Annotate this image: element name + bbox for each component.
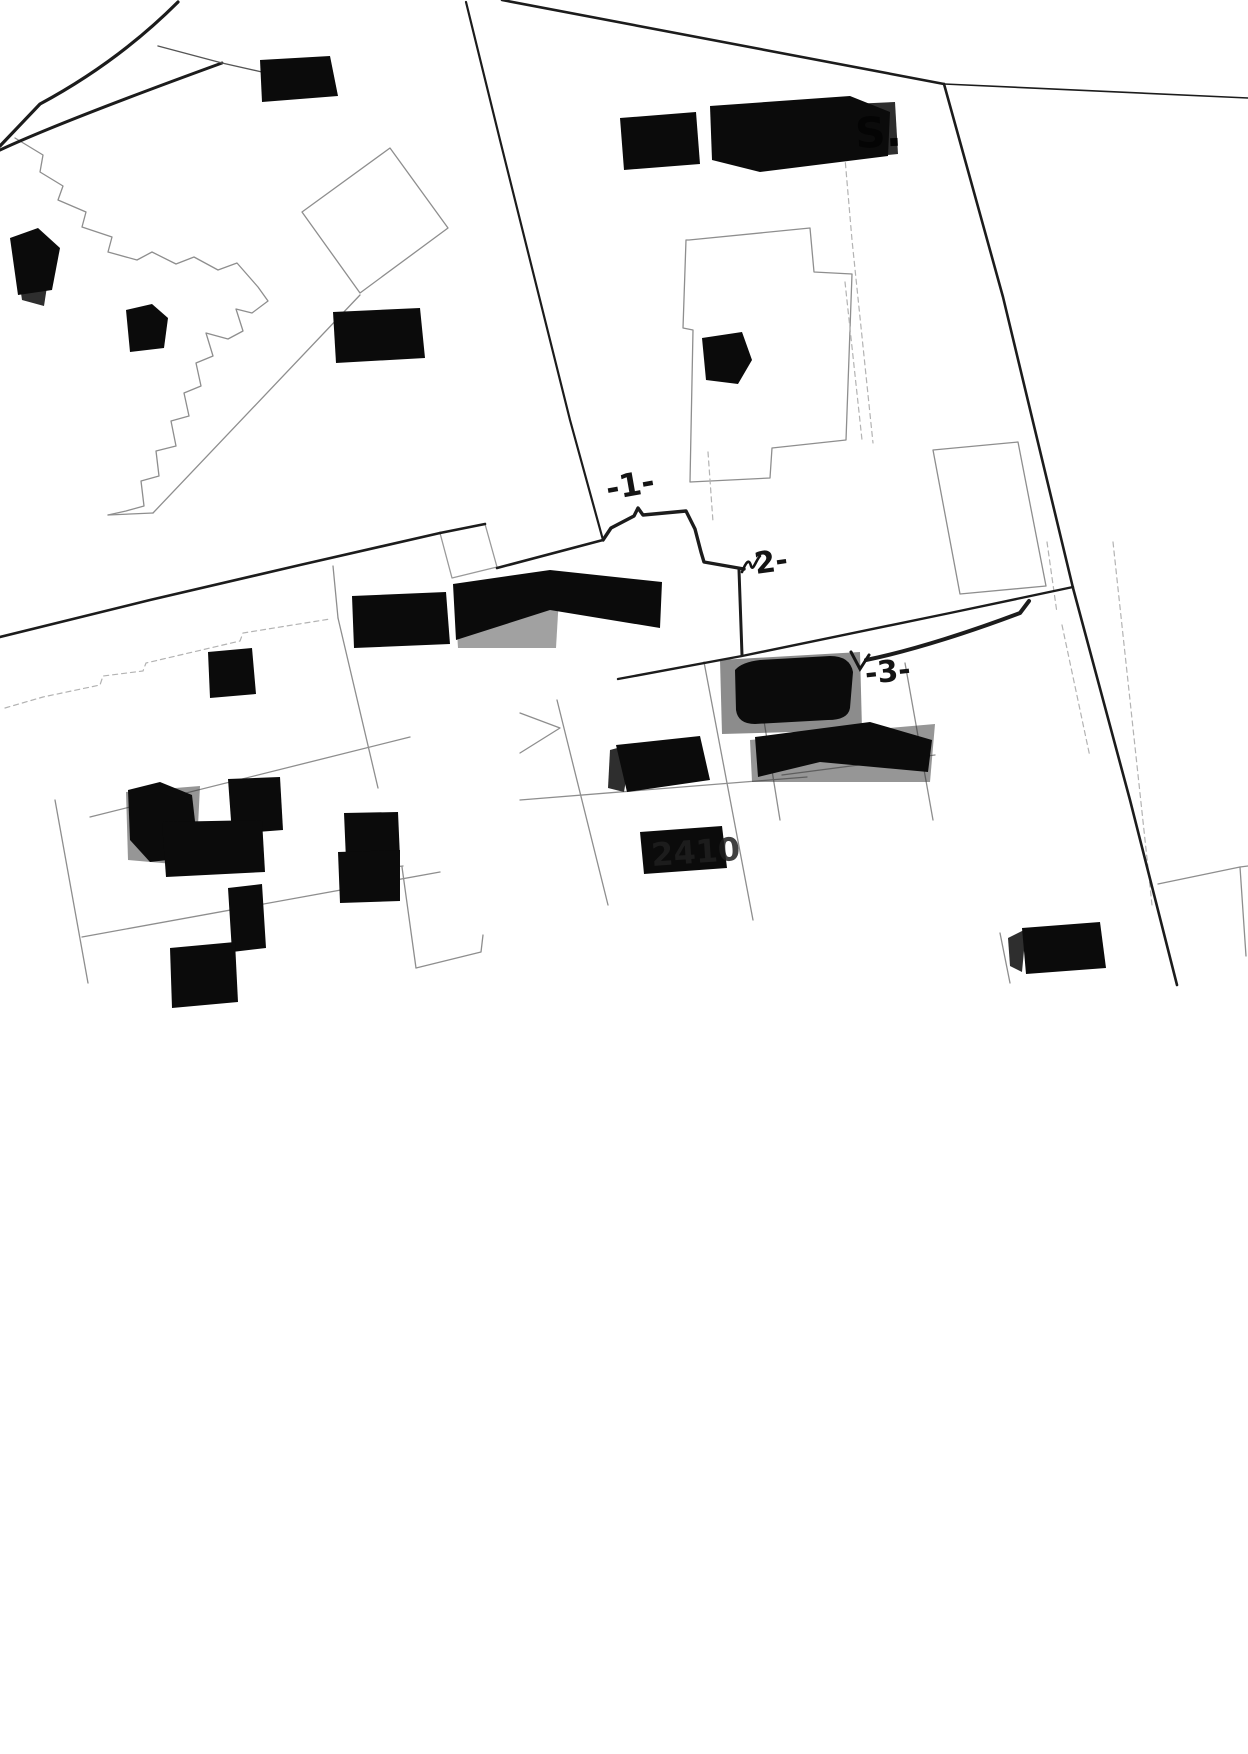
lot-line — [1240, 866, 1248, 867]
building-footprint — [228, 884, 266, 952]
boundary-steep-right — [944, 84, 1177, 985]
dashed-boundary — [1062, 625, 1090, 757]
parcel-rectangle — [302, 148, 448, 293]
boundary-steep-left — [466, 2, 603, 540]
annotation-3-label: -3- — [863, 652, 912, 692]
road-curve-top-left — [0, 2, 178, 146]
dashed-boundary — [1047, 542, 1057, 613]
lot-line — [402, 867, 416, 968]
building-footprint — [735, 656, 853, 724]
building-footprint — [10, 228, 60, 295]
parcel-quad — [933, 442, 1046, 594]
spur-line — [158, 46, 222, 63]
scanned-map-page: 2410 S. -1- 2- -3- — [0, 0, 1248, 1754]
dashed-boundary — [708, 452, 713, 522]
building-footprints — [10, 56, 1106, 1008]
dashed-boundary-stepped — [5, 619, 330, 708]
bracket-mark1 — [603, 508, 744, 569]
building-footprint — [333, 308, 425, 363]
building-label-s: S. — [854, 107, 903, 158]
street-edge-upper — [497, 540, 603, 568]
building-footprint — [352, 592, 450, 648]
spur-line — [222, 63, 262, 72]
parcel-line — [153, 295, 360, 513]
building-footprint — [170, 942, 238, 1008]
handwritten-annotations: -1- 2- -3- — [603, 462, 913, 692]
lot-line — [333, 566, 338, 618]
map-canvas: 2410 S. -1- 2- -3- — [0, 0, 1248, 1754]
road-line-top-right-ext — [944, 84, 1248, 98]
building-footprint — [1022, 922, 1106, 974]
redacted-label-block — [616, 736, 710, 792]
building-footprint — [208, 648, 256, 698]
lot-line — [557, 700, 608, 905]
lot-line — [55, 800, 88, 983]
street-connector — [739, 570, 742, 655]
dashed-boundary — [845, 282, 862, 440]
building-footprint — [338, 850, 400, 903]
swoosh-mark3 — [866, 601, 1029, 660]
dashed-boundary — [1113, 542, 1152, 905]
ghost-digits-label: 2410 — [650, 830, 741, 874]
lot-line — [1158, 867, 1246, 956]
building-footprint — [702, 332, 752, 384]
annotation-1-label: -1- — [603, 462, 658, 508]
building-footprint — [453, 570, 662, 640]
building-footprint — [126, 304, 168, 352]
building-footprint — [162, 820, 265, 877]
building-footprint — [260, 56, 338, 102]
building-label-s-text: S. — [854, 107, 903, 158]
annotation-2-label: 2- — [752, 543, 790, 582]
lot-line — [520, 713, 560, 753]
redacted-label-block — [620, 112, 700, 170]
street-edge-upper — [440, 524, 485, 533]
lot-line — [416, 935, 483, 968]
road-line-top-right — [502, 0, 944, 84]
road-line-top-left — [0, 63, 222, 150]
